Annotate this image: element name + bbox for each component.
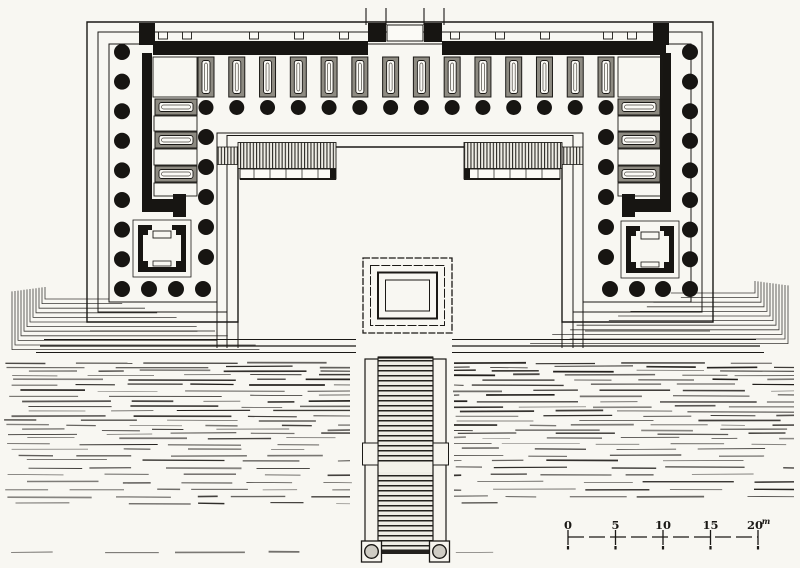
east-naiskos	[621, 221, 679, 278]
east-stair-ledge	[464, 169, 560, 179]
column	[683, 74, 698, 89]
column	[683, 222, 698, 237]
column	[683, 45, 698, 60]
west-wing-room	[154, 149, 197, 165]
parapet-joint-west	[363, 443, 379, 465]
west-naiskos	[133, 220, 191, 277]
column	[115, 193, 130, 208]
north-colonnade	[199, 101, 613, 115]
wall-joint-block	[541, 32, 550, 39]
column	[199, 101, 213, 115]
column-base-circle	[365, 545, 379, 559]
column	[291, 101, 305, 115]
central-altar	[363, 258, 452, 333]
grand-staircase	[362, 357, 450, 562]
terrace-hatch-line	[36, 288, 157, 313]
column	[599, 160, 614, 175]
engraving-page: 0 5 10 15 20 m	[0, 0, 800, 568]
north-wall-east-section	[442, 41, 666, 55]
column	[196, 282, 211, 297]
column	[683, 252, 698, 267]
column	[683, 133, 698, 148]
staircase-landing	[378, 462, 433, 472]
column	[199, 250, 214, 265]
column	[115, 74, 130, 89]
gate-pier-east	[424, 23, 442, 42]
column	[656, 282, 671, 297]
column	[599, 130, 614, 145]
east-wing-room	[618, 149, 661, 165]
column	[568, 101, 582, 115]
staircase-base-east	[430, 541, 450, 562]
staircase-treads	[378, 357, 433, 550]
column	[199, 220, 214, 235]
parapet-joint-east	[433, 443, 449, 465]
column	[683, 193, 698, 208]
column	[476, 101, 490, 115]
column	[115, 104, 130, 119]
scale-tick-label: 15	[702, 518, 718, 532]
column	[599, 220, 614, 235]
north-pier-row	[198, 57, 614, 97]
west-wing-wall-foot-block	[173, 194, 186, 217]
scale-tick-label: 20	[747, 518, 763, 532]
courtyard	[217, 143, 583, 180]
column	[115, 45, 130, 60]
scale-unit-label: m	[762, 516, 770, 526]
column	[199, 190, 214, 205]
column	[630, 282, 645, 297]
north-stoa	[139, 8, 669, 115]
scale-labels: 0 5 10 15 20 m	[564, 516, 770, 532]
wall-joint-block	[295, 32, 304, 39]
column	[115, 163, 130, 178]
column	[384, 101, 398, 115]
scale-tick-label: 5	[611, 518, 619, 532]
east-anta-pier	[653, 23, 669, 45]
column	[537, 101, 551, 115]
west-pier-stack	[155, 99, 197, 182]
terrace-hatch-line	[45, 287, 109, 299]
column	[603, 282, 618, 297]
platform-steps	[87, 22, 713, 348]
west-wing-room	[153, 57, 197, 97]
column-base-circle	[433, 545, 447, 559]
scale-ticks	[568, 530, 758, 550]
column	[115, 222, 130, 237]
scale-tick-label: 10	[655, 518, 671, 532]
column	[353, 101, 367, 115]
terrace-hatch-line	[24, 290, 197, 331]
wall-joint-block	[496, 32, 505, 39]
gate-opening	[387, 25, 423, 41]
wall-joint-block	[183, 32, 192, 39]
east-naiskos-base	[641, 232, 659, 239]
column	[142, 282, 157, 297]
scale-bar: 0 5 10 15 20 m	[564, 516, 770, 550]
east-pier-stack	[618, 99, 660, 182]
wall-joint-block	[604, 32, 613, 39]
west-anta-pier	[139, 23, 155, 45]
column	[507, 101, 521, 115]
column	[683, 104, 698, 119]
terrace-edge-lines	[36, 340, 764, 353]
north-gate	[366, 8, 444, 42]
site-plan-engraving: 0 5 10 15 20 m	[0, 0, 800, 568]
column	[683, 282, 698, 297]
column	[199, 160, 214, 175]
column	[115, 252, 130, 267]
column	[261, 101, 275, 115]
terrace-hatch-line	[12, 291, 259, 349]
scale-tick-label: 0	[564, 518, 572, 532]
wall-joint-block	[451, 32, 460, 39]
east-wing-room	[618, 57, 662, 97]
column	[115, 282, 130, 297]
column	[599, 190, 614, 205]
column	[599, 250, 614, 265]
wall-joint-block	[628, 32, 637, 39]
staircase-base-west	[362, 541, 382, 562]
terrace-hatch-line	[18, 291, 217, 341]
column	[445, 101, 459, 115]
north-wall-west-section	[153, 41, 368, 55]
column	[599, 101, 613, 115]
east-wing-wall-foot-block	[622, 194, 635, 217]
gate-pier-west	[368, 23, 386, 42]
column	[169, 282, 184, 297]
terrace-corner-west	[12, 287, 259, 350]
column	[230, 101, 244, 115]
column	[683, 163, 698, 178]
column	[322, 101, 336, 115]
east-wing-room	[618, 116, 661, 131]
column	[414, 101, 428, 115]
wall-joint-block	[159, 32, 168, 39]
west-naiskos-base	[153, 231, 171, 238]
column	[115, 133, 130, 148]
wall-joint-block	[250, 32, 259, 39]
west-stair-ledge	[240, 169, 336, 179]
west-wing-wall	[142, 53, 152, 203]
terrace-hatch-line	[42, 287, 122, 303]
courtyard-stair-east	[464, 143, 583, 180]
west-wing-room	[154, 116, 197, 131]
column	[199, 130, 214, 145]
wall-joint-block	[340, 32, 349, 39]
